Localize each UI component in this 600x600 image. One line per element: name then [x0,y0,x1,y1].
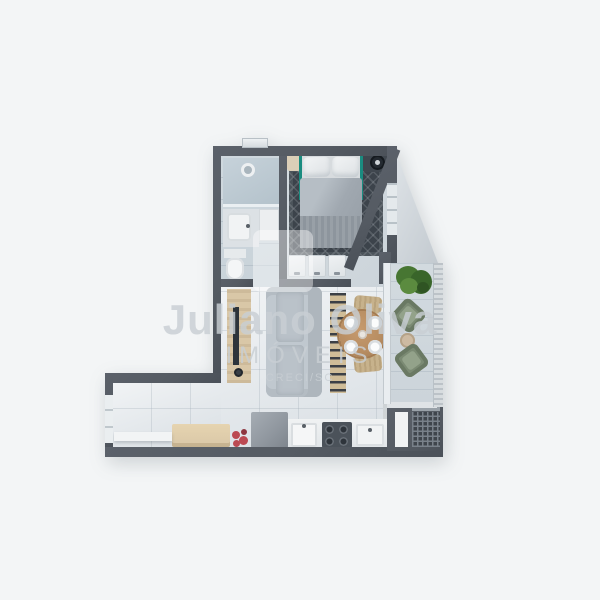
wall-bathroom-south [221,279,253,287]
watermark-brand: Juliano Oliva [0,299,600,341]
kitchen-faucet-icon [302,424,306,428]
service-door [395,412,408,447]
flower-icon [239,436,248,445]
pillow [332,157,360,178]
wall-top [213,146,397,156]
floor-plan: Juliano Oliva IMÓVEIS CRECI/SC [0,0,600,600]
shower-glass-divider [223,204,279,207]
watermark: Juliano Oliva IMÓVEIS CRECI/SC [0,299,600,386]
toilet-tank [224,249,246,258]
wall-shelf [114,432,172,441]
window-bedroom [387,183,397,235]
balcony-sill [387,402,437,408]
watermark-logo-mark [253,230,313,292]
flower-icon [241,429,247,435]
burner-icon [325,425,334,434]
watermark-subtitle: IMÓVEIS [0,343,600,369]
drying-grid [412,412,440,447]
bathroom-faucet-icon [246,224,250,228]
burner-icon [339,425,348,434]
burner-icon [325,437,334,446]
watermark-license: CRECI/SC [0,372,600,385]
wood-bench [172,424,230,447]
flower-icon [233,440,240,447]
window-top [242,138,268,148]
burner-icon [339,437,348,446]
shower-drain-icon [241,163,255,177]
corner-ledge [397,156,438,263]
pillow [303,157,331,178]
refrigerator [251,412,288,448]
window-wing [105,395,113,443]
table-lamp-core [375,160,380,165]
wardrobe-handle-icon [314,272,320,275]
plant-icon [400,278,418,294]
counter-faucet-icon [368,428,372,432]
toilet [226,258,244,280]
plant-icon [417,282,429,293]
wardrobe-handle-icon [334,272,340,275]
